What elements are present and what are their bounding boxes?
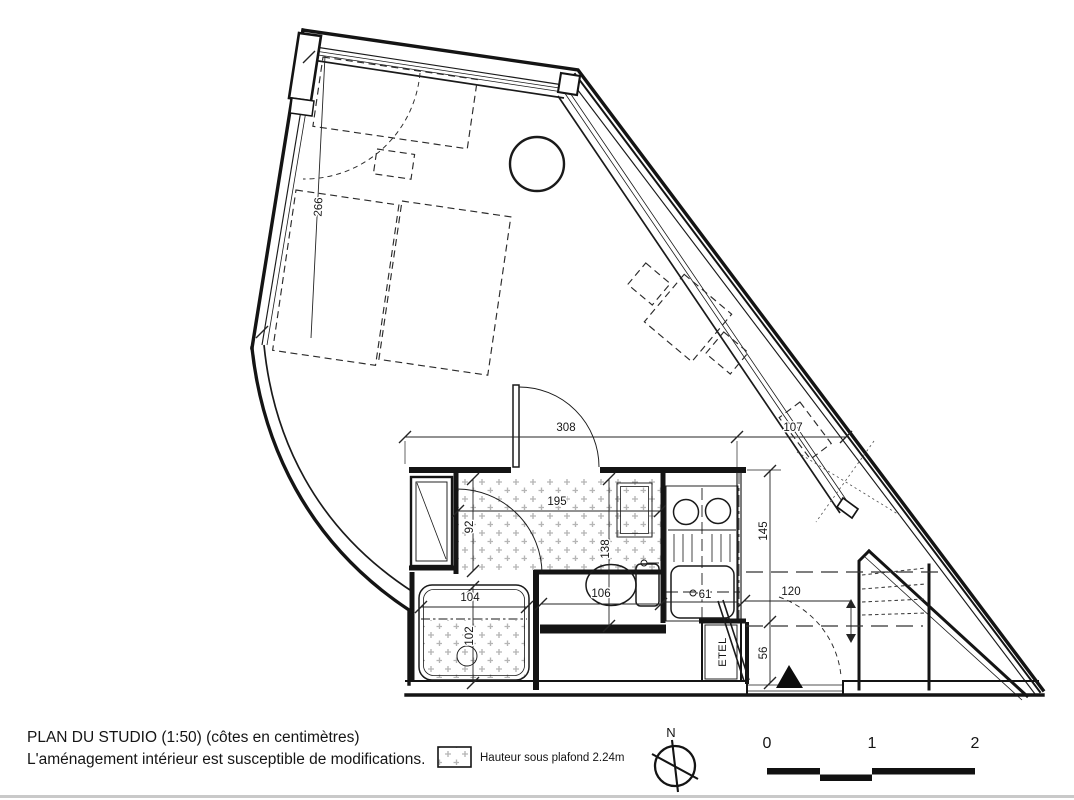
wardrobe-under-slope — [797, 441, 1027, 700]
faucet — [690, 590, 696, 596]
dim-wc-width: 106 — [591, 588, 610, 600]
dimension-lines — [256, 51, 856, 689]
diagonal-window-glazing — [563, 87, 849, 507]
entrance-marker-triangle — [776, 665, 803, 688]
dim-sink-width: 61 — [699, 589, 712, 601]
etel-label: ETEL — [717, 637, 729, 667]
dim-corridor-length: 195 — [547, 496, 566, 508]
legend: Hauteur sous plafond 2.24m — [438, 747, 624, 767]
dimension-labels: 266 308 107 195 92 138 104 102 106 61 14… — [313, 197, 803, 659]
floor-plan-drawing: ETEL — [0, 0, 1074, 800]
chair-1 — [628, 263, 671, 305]
bathroom-window — [411, 477, 452, 566]
dim-entry-width: 107 — [783, 422, 802, 434]
dim-right-depth: 145 — [758, 521, 770, 540]
scale-label-2: 2 — [971, 735, 980, 752]
dim-shower-depth: 102 — [464, 626, 476, 645]
closet-etel: ETEL — [702, 621, 741, 681]
window-bands — [289, 33, 858, 518]
glazing-end-block — [837, 498, 858, 518]
hatch-corridor — [458, 477, 661, 571]
legend-hatch-swatch — [438, 747, 471, 767]
burner-left — [674, 500, 699, 525]
scale-segment-a — [767, 768, 820, 775]
ceiling-height-hatch-areas — [423, 477, 661, 678]
scale-label-1: 1 — [868, 735, 877, 752]
scale-segment-c — [872, 768, 975, 775]
burner-right — [706, 499, 731, 524]
living-door-leaf — [513, 385, 519, 467]
round-table — [510, 137, 564, 191]
bed-right — [379, 201, 511, 375]
bed-left — [273, 190, 399, 365]
legend-label: Hauteur sous plafond 2.24m — [480, 752, 624, 764]
dim-shower-width: 104 — [460, 592, 480, 604]
dim-wc-depth: 138 — [600, 539, 612, 558]
dim-living-height: 266 — [313, 197, 326, 217]
page-bottom-edge — [0, 795, 1074, 798]
dim-wardrobe-dist: 120 — [781, 586, 800, 598]
corner-pier — [289, 33, 321, 101]
bend-mullion-block — [558, 73, 580, 95]
living-furniture — [273, 57, 749, 375]
dimension-ticks — [256, 51, 852, 689]
floor-plan-page: ETEL — [0, 0, 1074, 800]
title-block: PLAN DU STUDIO (1:50) (côtes en centimèt… — [27, 729, 425, 768]
scale-bar: 0 1 2 — [763, 735, 980, 781]
plan-title: PLAN DU STUDIO (1:50) (côtes en centimèt… — [27, 729, 360, 746]
scale-segment-b — [820, 775, 872, 782]
north-label: N — [666, 725, 675, 740]
dim-band-width: 308 — [556, 422, 575, 434]
top-window-glazing — [315, 51, 566, 93]
scale-label-0: 0 — [763, 735, 772, 752]
north-compass: N — [652, 725, 698, 792]
entrance-door-swing — [779, 597, 841, 676]
dim-door-offset: 56 — [758, 647, 770, 660]
window-opening-swing — [303, 73, 420, 179]
corner-pier-step — [290, 98, 314, 116]
dim-corridor-width: 92 — [464, 521, 476, 534]
exterior-walls — [252, 30, 1043, 695]
plan-subtitle: L'aménagement intérieur est susceptible … — [27, 751, 425, 768]
bedside-unit — [373, 149, 414, 179]
compass-cross — [652, 740, 698, 792]
